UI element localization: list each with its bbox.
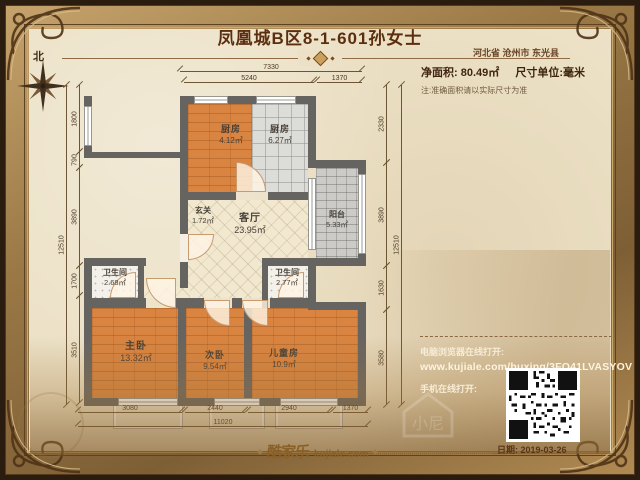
wall — [178, 308, 186, 398]
brand-logo: 酷家乐 kujiale.com — [258, 441, 377, 462]
wall — [232, 298, 242, 308]
wall — [270, 298, 316, 308]
room-label-second-bedroom: 次卧9.54㎡ — [186, 350, 244, 372]
dimension: 3510 — [79, 296, 80, 403]
wall — [308, 96, 316, 168]
dimension: 1630 — [386, 266, 387, 310]
room-label-kids-room: 儿童房10.9㎡ — [252, 348, 316, 370]
dimension: 1370 — [333, 412, 368, 413]
entry-door-opening — [180, 234, 188, 262]
room-label-kitchen-left: 厨房4.12㎡ — [208, 124, 254, 146]
window — [358, 174, 366, 254]
wall — [358, 302, 366, 406]
room-label-living: 客厅23.95㎡ — [218, 212, 282, 237]
dimension: 2330 — [386, 85, 387, 163]
date-label: 日期: 2019-03-26 — [497, 443, 567, 456]
dimension: 1800 — [79, 85, 80, 152]
location-text: 河北省 沧州市 东光县 — [420, 46, 612, 59]
dim-unit-label: 尺寸单位:毫米 — [515, 67, 585, 79]
wall — [84, 298, 146, 308]
window — [194, 96, 228, 104]
footer-dotted-line — [374, 453, 492, 454]
qr-code — [506, 368, 580, 442]
room-label-kitchen-right: 厨房6.27㎡ — [252, 124, 308, 146]
brand-domain: kujiale.com — [314, 449, 368, 460]
wall — [308, 258, 366, 266]
pc-open-label: 电脑浏览器在线打开: — [420, 345, 612, 358]
dimension: 7330 — [180, 71, 362, 72]
brand-name: 酷家乐 — [266, 441, 310, 462]
room-label-bathroom-left: 卫生间2.68㎡ — [86, 268, 144, 288]
dimension: 1700 — [79, 266, 80, 296]
balcony-sliding-door — [308, 178, 316, 250]
net-area-label: 净面积: — [421, 67, 458, 79]
window — [84, 106, 92, 146]
dimension: 3890 — [386, 163, 387, 266]
dimension: 11020 — [78, 426, 368, 427]
dimension: 12510 — [66, 85, 67, 405]
room-label-master-bedroom: 主卧13.32㎡ — [104, 340, 168, 365]
dimension: 1370 — [317, 82, 362, 83]
dimension: 3580 — [386, 310, 387, 405]
window — [256, 96, 296, 104]
wall — [262, 258, 316, 266]
wall — [188, 192, 236, 200]
net-area-line: 净面积: 80.49㎡ 尺寸单位:毫米 — [421, 64, 616, 80]
wall — [180, 262, 188, 288]
dimension: 12510 — [401, 85, 402, 405]
wall — [244, 308, 252, 398]
room-label-balcony: 阳台5.33㎡ — [316, 210, 358, 230]
svg-text:小尼: 小尼 — [412, 415, 444, 433]
net-area-value: 80.49㎡ — [461, 67, 500, 79]
wall — [176, 298, 204, 308]
dimension: 3080 — [78, 412, 182, 413]
compass-rose-icon — [17, 60, 69, 112]
dimension: 3890 — [79, 168, 80, 266]
accuracy-note: 注:准确面积请以实际尺寸为准 — [421, 85, 527, 96]
divider-ornament-icon — [298, 50, 342, 66]
wall — [180, 96, 188, 200]
footer-dashed-divider — [420, 336, 612, 337]
wall — [84, 152, 184, 158]
room-label-bathroom-right: 卫生间2.77㎡ — [258, 268, 316, 288]
dimension: 5240 — [184, 82, 314, 83]
floor-plan-sheet: 凤凰城B区8-1-601孙女士 河北省 沧州市 东光县 净面积: 80.49㎡ … — [0, 0, 640, 480]
dimension: 2440 — [185, 412, 245, 413]
qr-code-icon — [509, 371, 577, 439]
wall — [84, 258, 146, 266]
diamond-bullet-icon — [257, 449, 263, 455]
dimension: 2940 — [248, 412, 330, 413]
